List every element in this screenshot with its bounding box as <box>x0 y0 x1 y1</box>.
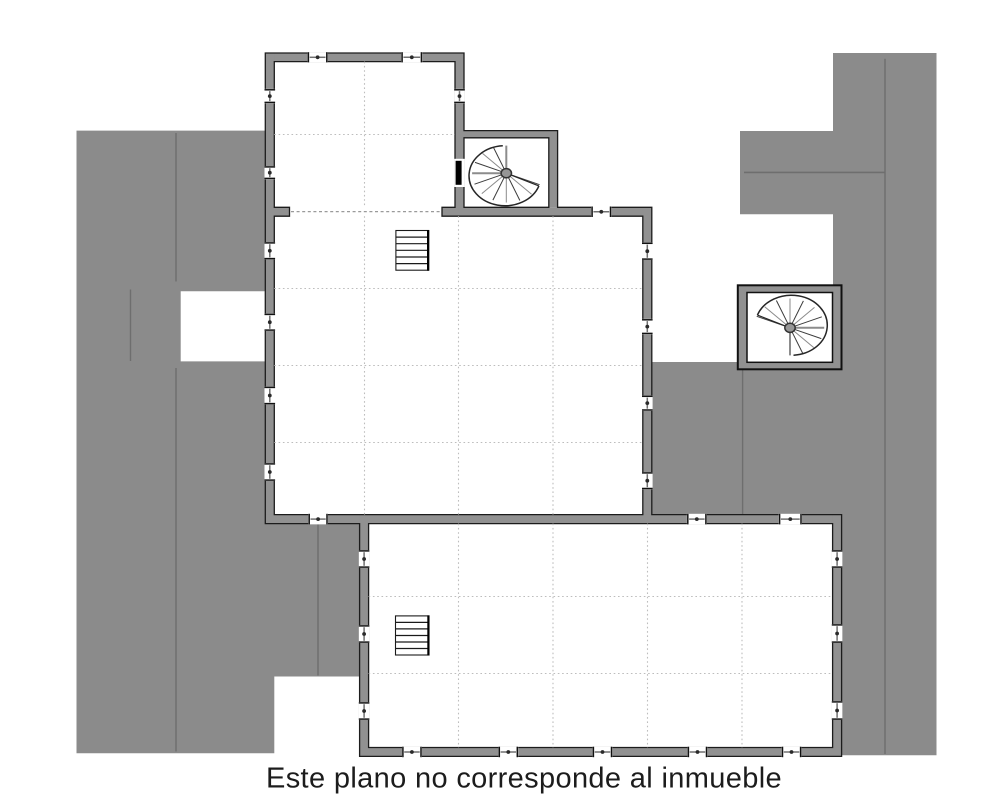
svg-text:Este plano no corresponde al i: Este plano no corresponde al inmueble <box>266 763 782 795</box>
